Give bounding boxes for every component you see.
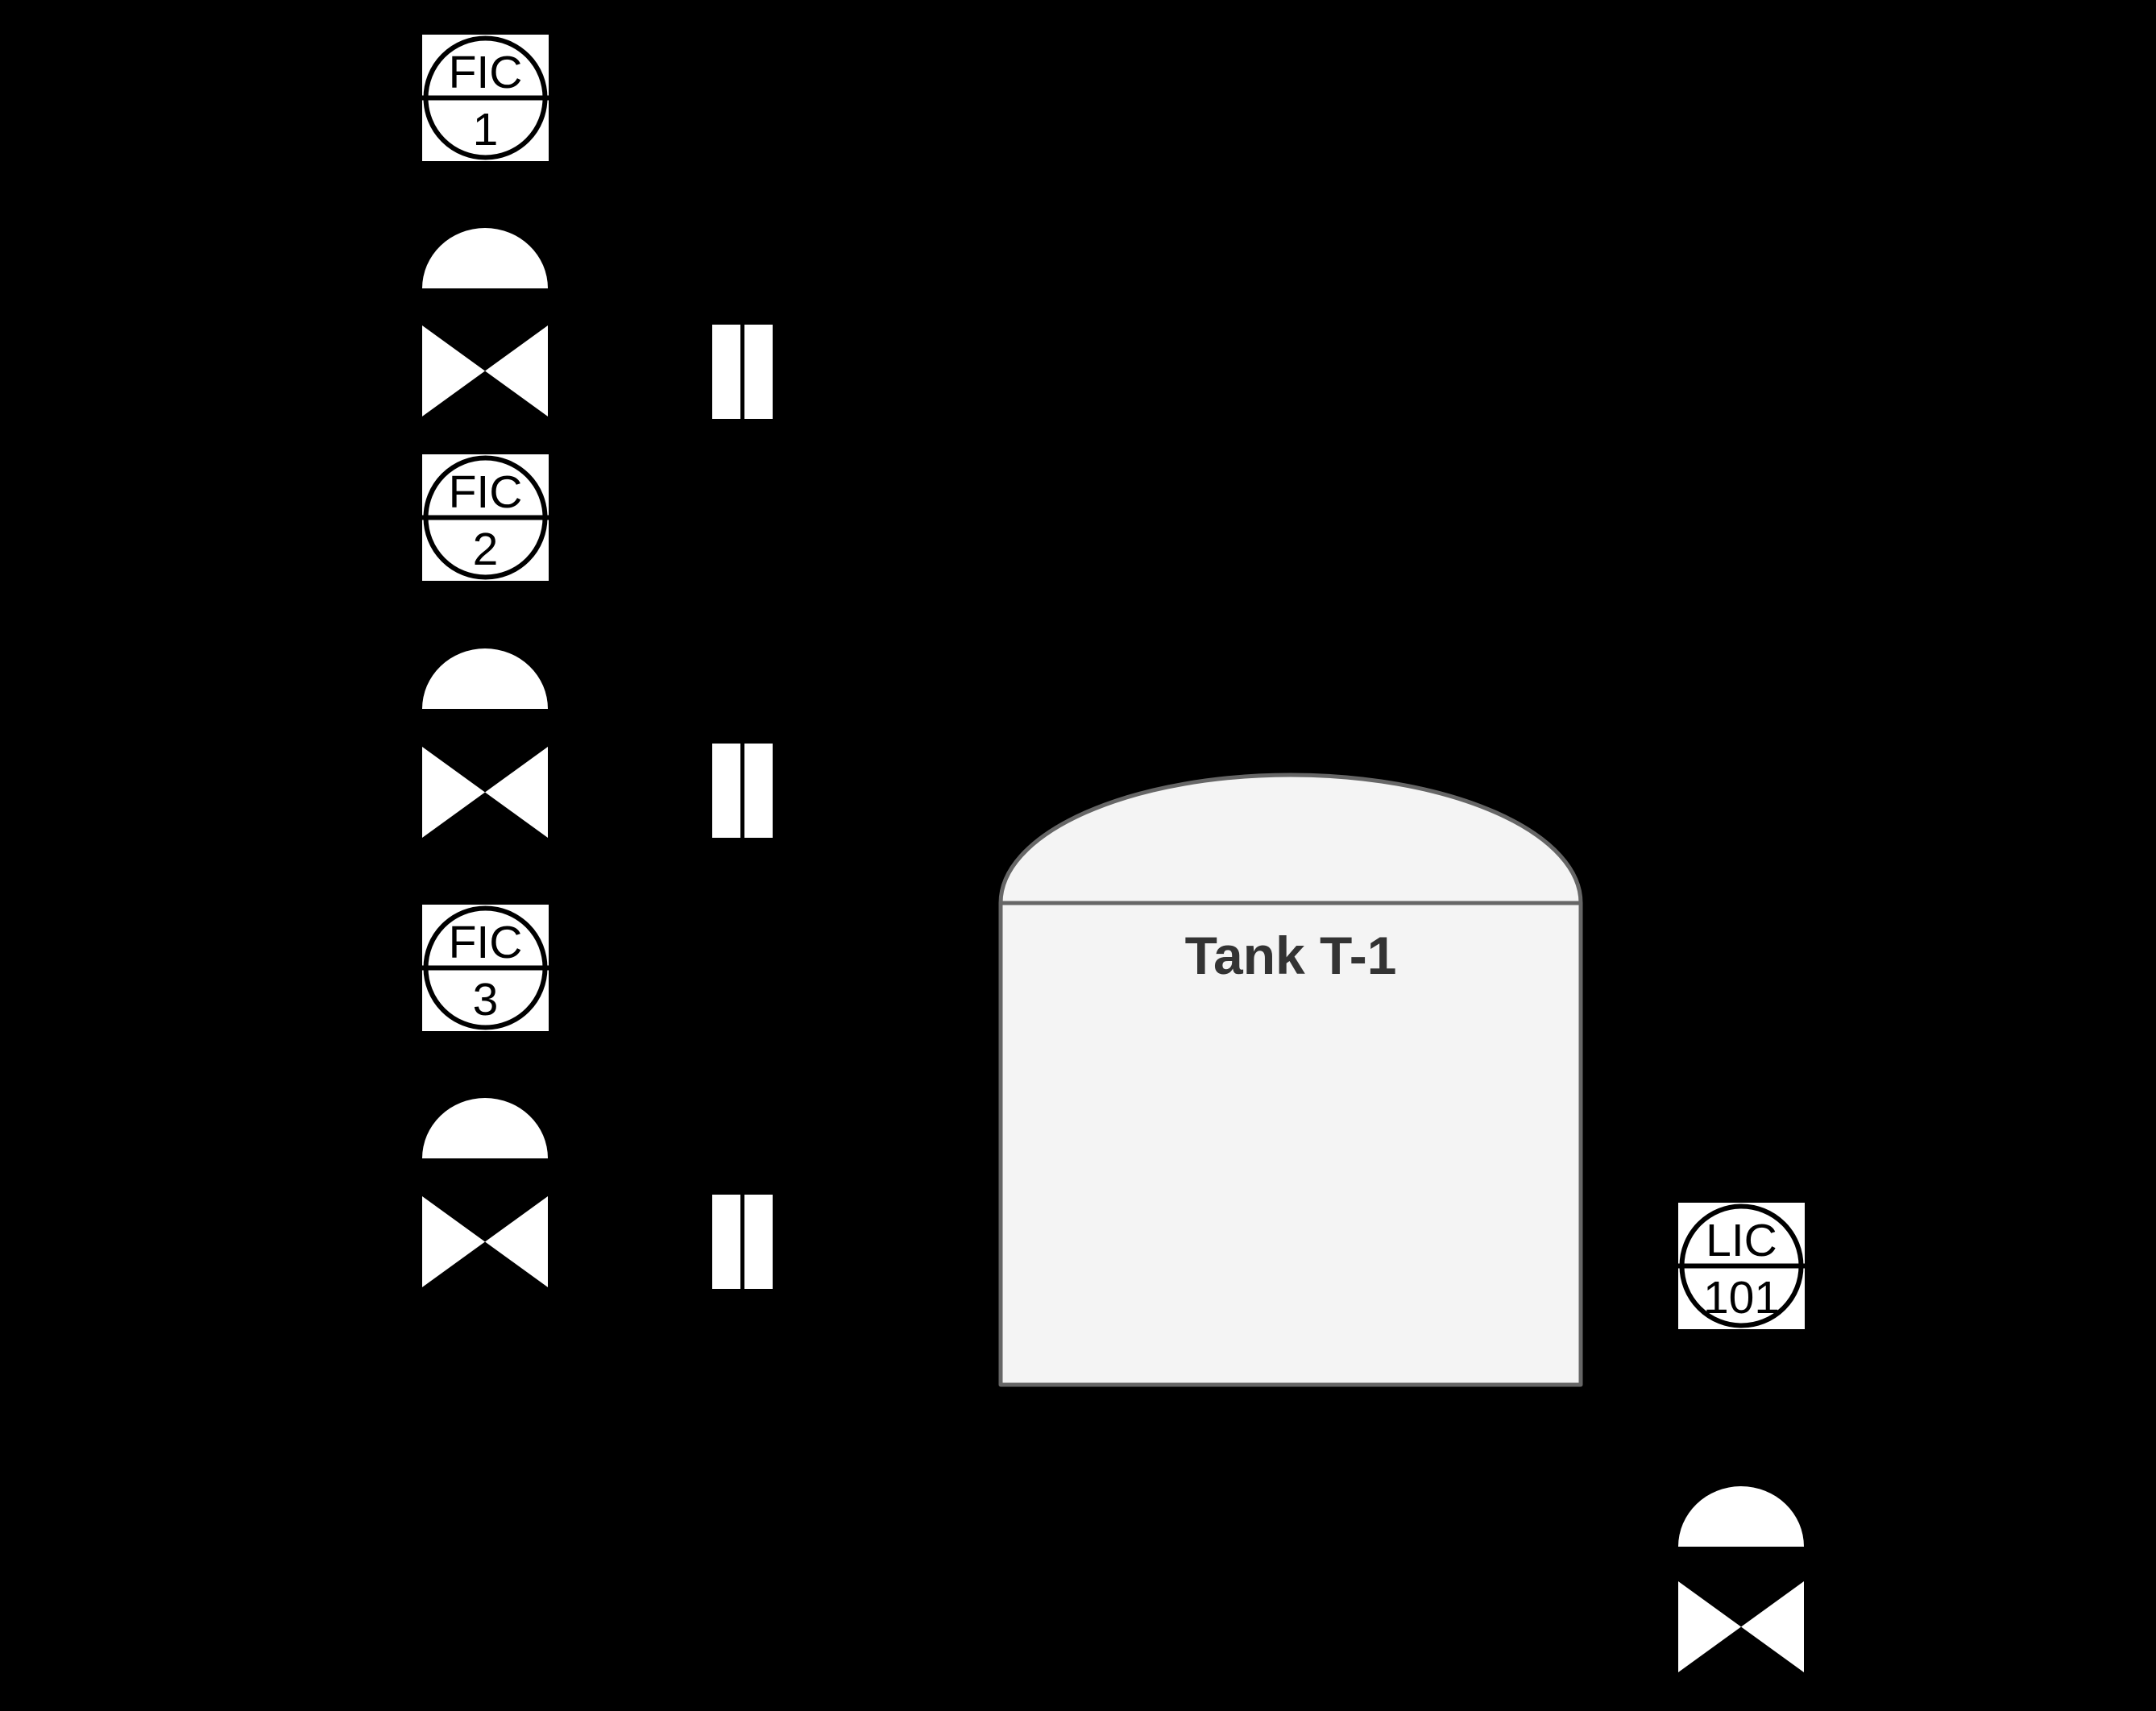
- instrument-function-label: LIC: [1678, 1203, 1805, 1266]
- orifice-bar: [712, 744, 740, 838]
- control-valve-icon: [422, 325, 548, 416]
- control-valve-icon: [1678, 1581, 1804, 1672]
- instrument-lic-101: LIC 101: [1678, 1203, 1805, 1329]
- orifice-bar: [744, 744, 773, 838]
- instrument-tag-label: 101: [1678, 1266, 1805, 1329]
- instrument-fic-3: FIC 3: [422, 905, 549, 1031]
- instrument-tag-label: 2: [422, 518, 549, 581]
- instrument-tag-label: 1: [422, 98, 549, 161]
- instrument-function-label: FIC: [422, 35, 549, 97]
- instrument-fic-1: FIC 1: [422, 35, 549, 161]
- orifice-bar: [744, 1195, 773, 1289]
- control-valve-icon: [422, 747, 548, 838]
- orifice-plate-icon: [712, 325, 773, 419]
- valve-actuator-icon: [1678, 1486, 1804, 1547]
- valve-actuator-icon: [422, 1098, 548, 1158]
- pid-diagram: FIC 1 FIC 2 FIC 3: [0, 0, 2156, 1711]
- instrument-function-label: FIC: [422, 905, 549, 967]
- orifice-bar: [744, 325, 773, 419]
- control-valve-icon: [422, 1196, 548, 1287]
- orifice-plate-icon: [712, 744, 773, 838]
- tank-label: Tank T-1: [1001, 926, 1581, 984]
- valve-actuator-icon: [422, 648, 548, 709]
- instrument-fic-2: FIC 2: [422, 454, 549, 581]
- orifice-plate-icon: [712, 1195, 773, 1289]
- tank-vessel: [997, 771, 1585, 1390]
- orifice-bar: [712, 325, 740, 419]
- valve-actuator-icon: [422, 228, 548, 288]
- instrument-function-label: FIC: [422, 454, 549, 517]
- instrument-tag-label: 3: [422, 968, 549, 1031]
- orifice-bar: [712, 1195, 740, 1289]
